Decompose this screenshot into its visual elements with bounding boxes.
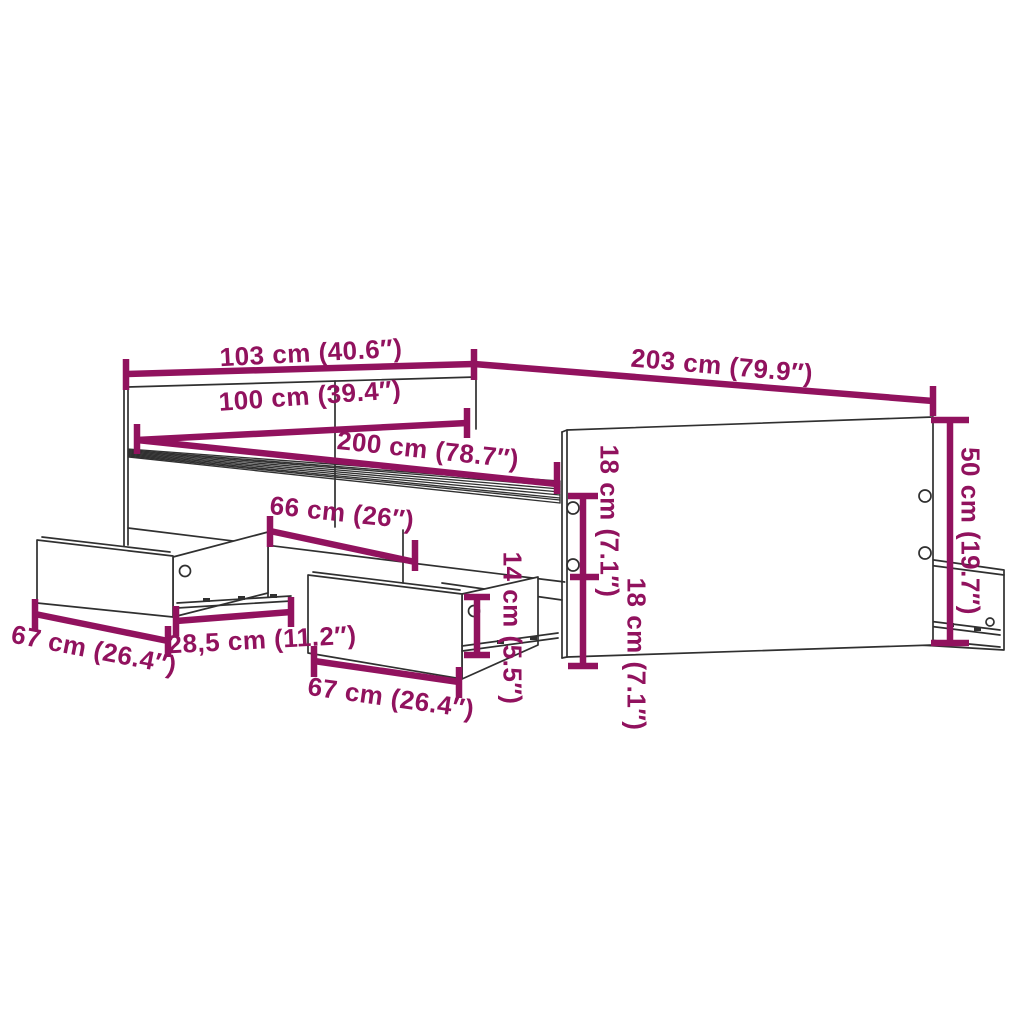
left-drawer xyxy=(37,532,291,617)
dim-label-lower-side-height: 18 cm (7.1″) xyxy=(621,578,652,731)
dim-label-drawer-front-height: 14 cm (5.5″) xyxy=(497,552,528,705)
bed-frame-line-drawing xyxy=(0,0,1024,1024)
dimension-diagram: 103 cm (40.6″) 203 cm (79.9″) 100 cm (39… xyxy=(0,0,1024,1024)
dim-label-upper-side-height: 18 cm (7.1″) xyxy=(594,445,625,598)
dim-label-side-panel-height: 50 cm (19.7″) xyxy=(955,447,986,615)
